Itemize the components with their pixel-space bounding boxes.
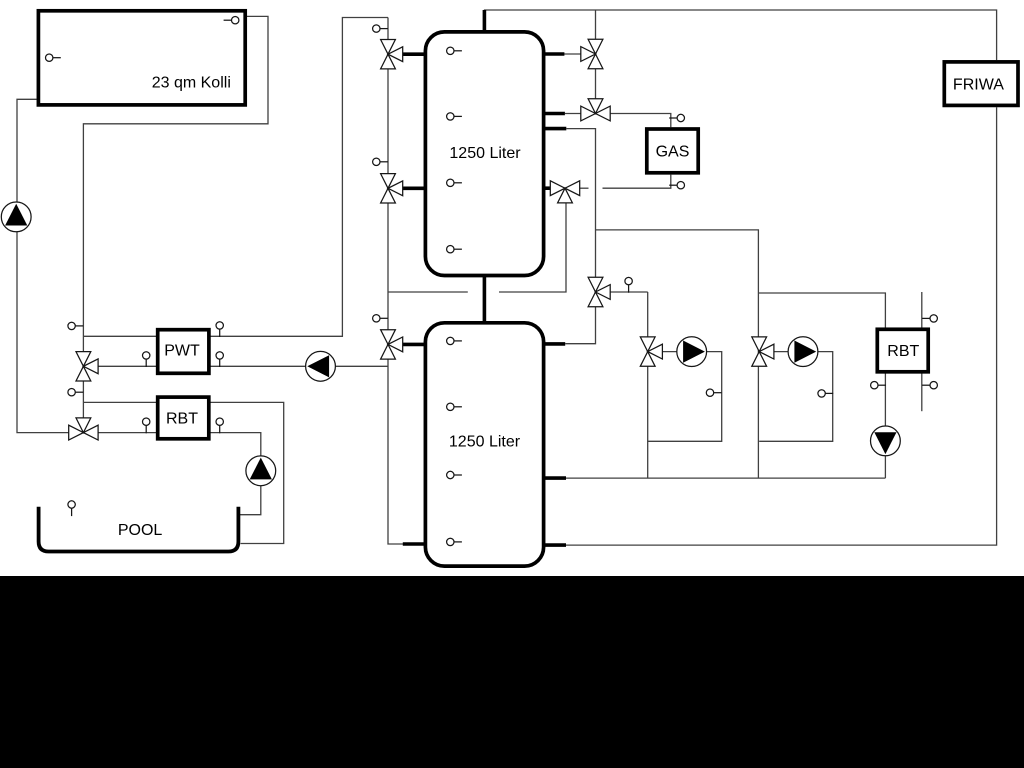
svg-text:RBT: RBT <box>166 411 198 428</box>
svg-text:GAS: GAS <box>656 144 690 161</box>
svg-text:PWT: PWT <box>164 343 200 360</box>
svg-text:23 qm Kolli: 23 qm Kolli <box>152 75 231 92</box>
svg-text:FRIWA: FRIWA <box>953 76 1004 93</box>
svg-text:1250 Liter: 1250 Liter <box>449 433 521 450</box>
svg-text:1250 Liter: 1250 Liter <box>449 145 521 162</box>
svg-text:RBT: RBT <box>887 343 919 360</box>
svg-text:POOL: POOL <box>118 522 163 539</box>
